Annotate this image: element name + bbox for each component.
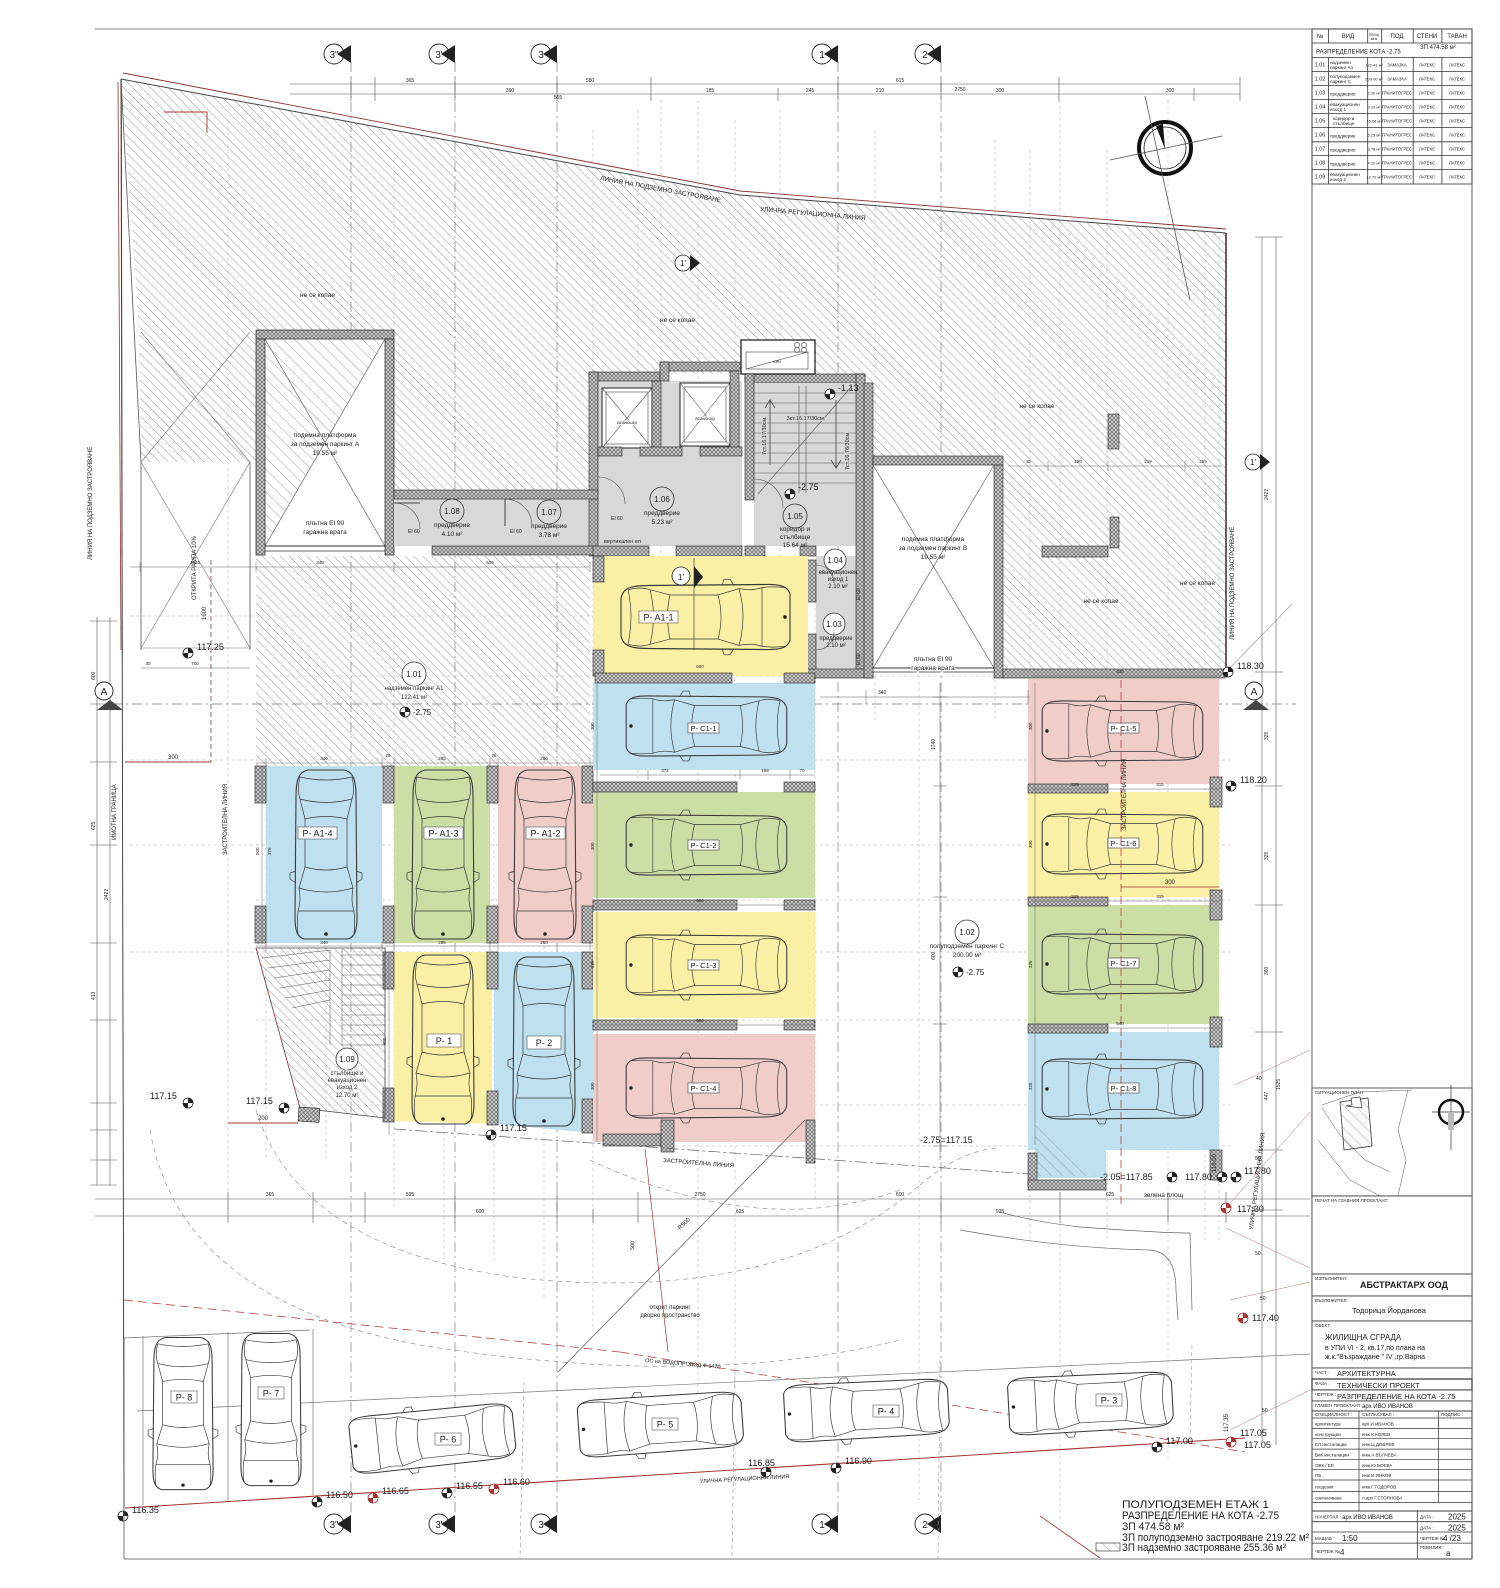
- svg-text:арх ИВО ИВАНОВ: арх ИВО ИВАНОВ: [1342, 1515, 1393, 1521]
- svg-text:615: 615: [896, 78, 905, 84]
- svg-text:ЧЕРТЕЖ №: ЧЕРТЕЖ №: [1315, 1549, 1340, 1554]
- svg-text:315: 315: [1156, 782, 1164, 787]
- svg-text:ОС на ВОДОПРОВОД Ф 1420: ОС на ВОДОПРОВОД Ф 1420: [645, 1358, 721, 1371]
- svg-text:3.78 м²: 3.78 м²: [538, 532, 560, 539]
- svg-text:28: 28: [385, 753, 391, 758]
- svg-text:1': 1': [678, 573, 684, 582]
- svg-text:R500: R500: [677, 1217, 692, 1232]
- svg-text:паркинг А1: паркинг А1: [1330, 65, 1354, 70]
- svg-text:ТЕХНИЧЕСКИ ПРОЕКТ: ТЕХНИЧЕСКИ ПРОЕКТ: [1337, 1381, 1420, 1390]
- svg-text:1.04: 1.04: [827, 556, 843, 565]
- svg-text:паркинг С: паркинг С: [1330, 79, 1352, 84]
- svg-text:325: 325: [1028, 1082, 1033, 1090]
- svg-text:340: 340: [320, 940, 328, 945]
- svg-text:340: 340: [878, 690, 887, 696]
- svg-text:инж.И.ЯНКОВ: инж.И.ЯНКОВ: [1362, 1473, 1391, 1478]
- svg-text:630: 630: [1116, 669, 1124, 674]
- svg-text:117.80: 117.80: [1244, 1166, 1271, 1176]
- svg-text:ЛАТЕКС: ЛАТЕКС: [1449, 105, 1465, 110]
- svg-text:2422: 2422: [104, 889, 110, 900]
- svg-text:не се копае: не се копае: [1020, 403, 1055, 410]
- svg-text:300: 300: [996, 88, 1005, 94]
- svg-text:117.40: 117.40: [1252, 1313, 1279, 1323]
- svg-text:ГРАНИТОГРЕС: ГРАНИТОГРЕС: [1382, 91, 1412, 96]
- svg-text:EI 60: EI 60: [856, 653, 862, 665]
- svg-text:117.15: 117.15: [500, 1123, 527, 1133]
- svg-text:116.65: 116.65: [382, 1486, 409, 1496]
- svg-text:3": 3": [329, 50, 339, 61]
- svg-text:арх И ИВАНОВ: арх И ИВАНОВ: [1362, 1422, 1394, 1427]
- svg-text:ГРАНИТОГРЕС: ГРАНИТОГРЕС: [1382, 161, 1412, 166]
- svg-text:1.01: 1.01: [1315, 63, 1326, 69]
- svg-text:УЛИЧНА РЕГУЛАЦИОННА ЛИНИЯ: УЛИЧНА РЕГУЛАЦИОННА ЛИНИЯ: [1249, 1133, 1267, 1231]
- svg-text:1.07: 1.07: [1315, 147, 1326, 153]
- svg-text:15.64 м²: 15.64 м²: [1366, 119, 1382, 124]
- svg-text:300: 300: [590, 722, 595, 730]
- svg-text:600: 600: [931, 951, 937, 960]
- svg-text:изход 1: изход 1: [1330, 107, 1346, 112]
- svg-text:НАЧЕРТАЛ :: НАЧЕРТАЛ :: [1315, 1515, 1341, 1520]
- svg-text:700: 700: [191, 661, 199, 666]
- svg-text:ФАЗА :: ФАЗА :: [1315, 1381, 1330, 1386]
- svg-text:340: 340: [316, 560, 324, 565]
- svg-text:A: A: [101, 687, 108, 698]
- svg-text:ДАТА :: ДАТА :: [1420, 1515, 1434, 1520]
- svg-text:2750: 2750: [954, 87, 965, 93]
- svg-text:ЗАСТРОИТЕЛНА ЛИНИЯ: ЗАСТРОИТЕЛНА ЛИНИЯ: [663, 1158, 734, 1170]
- svg-text:-2.75: -2.75: [798, 482, 819, 492]
- svg-text:447: 447: [1264, 1091, 1270, 1100]
- svg-text:1.05: 1.05: [787, 512, 803, 521]
- svg-text:4.10 м²: 4.10 м²: [441, 531, 463, 538]
- svg-text:117.80: 117.80: [1185, 1172, 1212, 1182]
- svg-text:ЛАТЕКС: ЛАТЕКС: [1449, 161, 1465, 166]
- svg-text:подемна платформа: подемна платформа: [902, 536, 965, 543]
- svg-text:стълбище и: стълбище и: [330, 1071, 363, 1077]
- svg-text:ЛАТЕКС: ЛАТЕКС: [1419, 147, 1435, 152]
- svg-text:1': 1': [680, 259, 686, 268]
- svg-text:300: 300: [590, 842, 595, 850]
- svg-text:вертикален ел: вертикален ел: [604, 539, 641, 545]
- svg-text:P- C1-4: P- C1-4: [691, 1084, 717, 1093]
- svg-text:ЛАТЕКС: ЛАТЕКС: [1449, 119, 1465, 124]
- svg-text:P- 1: P- 1: [436, 1036, 453, 1046]
- svg-text:12.70 м²: 12.70 м²: [336, 1093, 359, 1099]
- svg-text:25: 25: [491, 753, 497, 758]
- svg-text:ОВК / ЕЕ: ОВК / ЕЕ: [1315, 1463, 1334, 1468]
- svg-text:600: 600: [896, 1192, 905, 1198]
- svg-text:преддверие: преддверие: [1330, 92, 1356, 97]
- svg-text:ПОДПИС :: ПОДПИС :: [1441, 1412, 1463, 1417]
- svg-text:P- 2: P- 2: [536, 1038, 553, 1048]
- svg-text:ГЛАВЕН ПРОЕКТАНТ :: ГЛАВЕН ПРОЕКТАНТ :: [1315, 1403, 1363, 1408]
- svg-text:дворно пространство: дворно пространство: [640, 1313, 700, 1319]
- svg-text:P- C1-1: P- C1-1: [691, 724, 717, 733]
- svg-text:280: 280: [1074, 459, 1082, 464]
- svg-text:не се копае: не се копае: [300, 292, 335, 299]
- svg-text:625: 625: [1106, 1192, 1115, 1198]
- svg-text:ПБ: ПБ: [1315, 1473, 1321, 1478]
- svg-text:ЗП 474.58 м²: ЗП 474.58 м²: [1420, 45, 1456, 51]
- svg-text:ИМОТНА ГРАНИЦА: ИМОТНА ГРАНИЦА: [112, 784, 118, 840]
- svg-text:50: 50: [1262, 1408, 1268, 1414]
- svg-text:ЕЛ инсталации: ЕЛ инсталации: [1315, 1442, 1347, 1447]
- svg-text:285: 285: [438, 756, 446, 761]
- svg-text:315: 315: [1156, 894, 1164, 899]
- svg-text:1.01: 1.01: [406, 670, 422, 679]
- svg-text:50: 50: [1260, 1296, 1266, 1302]
- svg-text:1.03: 1.03: [1315, 91, 1326, 97]
- svg-text:не се копае: не се копае: [1180, 580, 1215, 587]
- svg-text:не се копае: не се копае: [660, 317, 695, 324]
- svg-text:1.02: 1.02: [959, 928, 975, 937]
- svg-text:ВЪЗЛОЖИТЕЛ:: ВЪЗЛОЖИТЕЛ:: [1315, 1298, 1348, 1303]
- svg-text:P- A1-4: P- A1-4: [302, 829, 332, 839]
- svg-text:АРХИТЕКТУРНА: АРХИТЕКТУРНА: [1337, 1369, 1396, 1378]
- svg-text:625: 625: [736, 1209, 745, 1215]
- svg-text:зелена площ: зелена площ: [1144, 1192, 1184, 1199]
- svg-text:12.70 м²: 12.70 м²: [1366, 175, 1382, 180]
- svg-text:325: 325: [1264, 731, 1270, 740]
- svg-text:P- C1-3: P- C1-3: [691, 961, 717, 970]
- svg-text:117.05: 117.05: [1244, 1440, 1271, 1450]
- svg-text:P- C1-8: P- C1-8: [1111, 1084, 1137, 1093]
- svg-text:19.55 м²: 19.55 м²: [921, 554, 947, 561]
- svg-text:ЛАТЕКС: ЛАТЕКС: [1419, 77, 1435, 82]
- svg-text:300: 300: [1028, 722, 1033, 730]
- svg-text:РАЗПРЕДЕЛЕНИЕ НА КОТА -2.75: РАЗПРЕДЕЛЕНИЕ НА КОТА -2.75: [1337, 1392, 1455, 1401]
- svg-text:600: 600: [696, 664, 704, 669]
- svg-text:P- A1-2: P- A1-2: [530, 829, 560, 839]
- svg-text:-2.75: -2.75: [413, 708, 432, 717]
- svg-text:3: 3: [538, 1520, 544, 1531]
- svg-text:ГРАНИТОГРЕС: ГРАНИТОГРЕС: [1382, 147, 1412, 152]
- svg-text:АБСТРАКТАРХ ООД: АБСТРАКТАРХ ООД: [1360, 1280, 1449, 1290]
- svg-text:500: 500: [255, 847, 260, 855]
- svg-text:116.50: 116.50: [326, 1490, 353, 1500]
- svg-text:за подземен паркинг А: за подземен паркинг А: [291, 441, 360, 448]
- svg-text:ЛАТЕКС: ЛАТЕКС: [1419, 133, 1435, 138]
- svg-text:3": 3": [329, 1520, 339, 1531]
- svg-text:219: 219: [1144, 459, 1152, 464]
- svg-text:ЛАТЕКС: ЛАТЕКС: [1419, 105, 1435, 110]
- svg-text:СЪГЛАСУВАЛ :: СЪГЛАСУВАЛ :: [1362, 1412, 1394, 1417]
- svg-text:505: 505: [486, 560, 494, 565]
- svg-text:надземен паркинг А1: надземен паркинг А1: [384, 686, 444, 692]
- svg-text:2.10 м²: 2.10 м²: [1368, 105, 1382, 110]
- svg-text:EI 60: EI 60: [856, 588, 862, 600]
- svg-text:3ст.16.17/30см.: 3ст.16.17/30см.: [787, 416, 826, 422]
- svg-text:ж.к."Възраждане " IV ,гр.Варна: ж.к."Възраждане " IV ,гр.Варна: [1325, 1354, 1425, 1361]
- svg-text:ОБЕКТ:: ОБЕКТ:: [1315, 1323, 1331, 1328]
- svg-text:-1.13: -1.13: [838, 383, 859, 393]
- svg-text:ЗП надземно застрояване 255.36: ЗП надземно застрояване 255.36 м²: [1122, 1542, 1286, 1554]
- svg-text:ЛАТЕКС: ЛАТЕКС: [1419, 175, 1435, 180]
- svg-text:225: 225: [1071, 894, 1079, 899]
- svg-text:ВИД: ВИД: [1342, 34, 1354, 40]
- svg-text:1: 1: [819, 1520, 825, 1531]
- svg-text:№: №: [1317, 33, 1323, 40]
- svg-text:285: 285: [438, 940, 446, 945]
- svg-text:ОТКРИТА РАМПА 10%: ОТКРИТА РАМПА 10%: [192, 535, 198, 600]
- svg-text:365: 365: [266, 1192, 275, 1198]
- svg-text:260: 260: [540, 756, 548, 761]
- svg-text:625: 625: [91, 821, 97, 830]
- svg-text:118.00: 118.00: [1212, 1153, 1218, 1172]
- svg-text:ПЕЧАТ НА ГЛАВНИЯ ПРОЕКТАНТ:: ПЕЧАТ НА ГЛАВНИЯ ПРОЕКТАНТ:: [1315, 1198, 1389, 1203]
- svg-text:инж.Г.ТОДОРОВ: инж.Г.ТОДОРОВ: [1362, 1485, 1396, 1490]
- svg-text:1.08: 1.08: [444, 507, 460, 516]
- svg-text:РЕВИЗИЯ :: РЕВИЗИЯ :: [1420, 1545, 1444, 1550]
- svg-text:открит паркинг: открит паркинг: [649, 1305, 691, 1311]
- svg-text:210: 210: [876, 88, 885, 94]
- svg-text:1.03: 1.03: [826, 620, 842, 629]
- svg-text:изход 1: изход 1: [828, 577, 849, 583]
- svg-text:ЛАТЕКС: ЛАТЕКС: [1419, 63, 1435, 68]
- svg-text:EI 60: EI 60: [611, 516, 623, 522]
- svg-text:геодезия: геодезия: [1315, 1485, 1334, 1490]
- svg-text:арх ИВО ИВАНОВ: арх ИВО ИВАНОВ: [1362, 1404, 1413, 1410]
- svg-text:ИЗПЪЛНИТЕЛ:: ИЗПЪЛНИТЕЛ:: [1315, 1276, 1347, 1281]
- svg-text:1.06: 1.06: [1315, 133, 1326, 139]
- svg-text:л.арх.Г.СТОЯНОВА: л.арх.Г.СТОЯНОВА: [1362, 1496, 1402, 1501]
- svg-text:РАЗПРЕДЕЛЕНИЕ КОТА -2.75: РАЗПРЕДЕЛЕНИЕ КОТА -2.75: [1316, 50, 1401, 56]
- svg-text:сен: сен: [773, 359, 781, 364]
- svg-text:2.10 м²: 2.10 м²: [828, 584, 847, 590]
- svg-text:1.09: 1.09: [1315, 175, 1326, 181]
- svg-text:117.05: 117.05: [1240, 1428, 1267, 1438]
- svg-text:ВиК инсталации: ВиК инсталации: [1315, 1452, 1349, 1457]
- svg-text:1525: 1525: [1276, 1079, 1282, 1090]
- svg-text:117.35: 117.35: [1224, 1413, 1230, 1432]
- svg-text:325: 325: [1264, 851, 1270, 860]
- svg-text:5.23 м²: 5.23 м²: [1368, 133, 1382, 138]
- svg-text:ЗАСТРОИТЕЛНА ЛИНИЯ: ЗАСТРОИТЕЛНА ЛИНИЯ: [1122, 759, 1128, 830]
- svg-text:ПОД: ПОД: [1391, 34, 1404, 40]
- svg-text:а: а: [1446, 1549, 1451, 1558]
- svg-text:2.10 м²: 2.10 м²: [1368, 91, 1382, 96]
- svg-text:300: 300: [1165, 880, 1176, 886]
- svg-text:ГРАНИТОГРЕС: ГРАНИТОГРЕС: [1382, 175, 1412, 180]
- svg-text:ЛАТЕКС: ЛАТЕКС: [1419, 161, 1435, 166]
- svg-text:365: 365: [406, 78, 415, 84]
- svg-text:117.25: 117.25: [197, 642, 224, 652]
- svg-text:375: 375: [267, 847, 272, 855]
- svg-text:300: 300: [1028, 840, 1033, 848]
- svg-text:УЛИЧНА РЕГУЛАЦИОННА ЛИНИЯ: УЛИЧНА РЕГУЛАЦИОННА ЛИНИЯ: [700, 1474, 790, 1485]
- svg-text:3.78 м²: 3.78 м²: [1368, 147, 1382, 152]
- svg-text:595: 595: [406, 1192, 415, 1198]
- svg-text:плътна EI 90: плътна EI 90: [914, 656, 953, 663]
- svg-text:ТАВАН: ТАВАН: [1447, 34, 1467, 40]
- svg-text:7ст.16.17/30см.: 7ст.16.17/30см.: [762, 416, 768, 455]
- svg-text:1600: 1600: [202, 606, 208, 620]
- svg-text:40: 40: [1256, 1076, 1262, 1082]
- svg-text:ЛАТЕКС: ЛАТЕКС: [1449, 147, 1465, 152]
- svg-text:185: 185: [706, 88, 715, 94]
- svg-text:EI 60: EI 60: [408, 529, 420, 535]
- svg-text:118.30: 118.30: [1237, 661, 1264, 671]
- svg-text:1535: 1535: [190, 560, 201, 565]
- svg-text:P- 5: P- 5: [657, 1420, 674, 1430]
- svg-text:117.00: 117.00: [1166, 1436, 1193, 1446]
- svg-text:ЛАТЕКС: ЛАТЕКС: [1419, 119, 1435, 124]
- svg-text:118.20: 118.20: [1240, 775, 1267, 785]
- svg-text:555: 555: [554, 95, 563, 101]
- svg-text:P- 7: P- 7: [263, 1389, 280, 1399]
- svg-text:245: 245: [806, 88, 815, 94]
- svg-text:ДАТА :: ДАТА :: [1420, 1526, 1434, 1531]
- svg-text:ЧЕРТЕЖ :: ЧЕРТЕЖ :: [1315, 1392, 1336, 1397]
- svg-text:4 /23: 4 /23: [1443, 1534, 1461, 1543]
- svg-text:1.06: 1.06: [654, 495, 670, 504]
- svg-text:P- 8: P- 8: [176, 1393, 193, 1403]
- svg-text:117.15: 117.15: [246, 1096, 273, 1106]
- svg-text:инж.Ю.БОЕВА: инж.Ю.БОЕВА: [1362, 1463, 1392, 1468]
- svg-text:1: 1: [819, 50, 825, 61]
- svg-text:полуподземен паркинг С: полуподземен паркинг С: [930, 943, 1005, 950]
- svg-text:117.15: 117.15: [150, 1091, 177, 1101]
- svg-text:ЖИЛИЩНА СГРАДА: ЖИЛИЩНА СГРАДА: [1325, 1333, 1402, 1342]
- svg-text:1.04: 1.04: [1315, 105, 1326, 111]
- svg-text:1.08: 1.08: [1315, 161, 1326, 167]
- svg-text:1740: 1740: [931, 739, 937, 750]
- svg-text:изход 2: изход 2: [337, 1085, 358, 1091]
- svg-text:200.00 м²: 200.00 м²: [1365, 77, 1383, 82]
- svg-text:1.09: 1.09: [339, 1055, 355, 1064]
- svg-text:ЛИНИЯ НА ПОДЗЕМНО ЗАСТРОЯВАНЕ: ЛИНИЯ НА ПОДЗЕМНО ЗАСТРОЯВАНЕ: [88, 447, 94, 560]
- svg-text:40: 40: [1025, 459, 1031, 464]
- svg-text:300: 300: [590, 1082, 595, 1090]
- svg-text:ЛАТЕКС: ЛАТЕКС: [1449, 63, 1465, 68]
- svg-text:асансьор: асансьор: [695, 416, 715, 421]
- svg-text:P- A1-3: P- A1-3: [428, 829, 458, 839]
- svg-text:ЛАТЕКС: ЛАТЕКС: [1449, 175, 1465, 180]
- svg-text:1.05: 1.05: [1315, 119, 1326, 125]
- svg-text:225: 225: [1071, 782, 1079, 787]
- svg-text:стълбище: стълбище: [780, 533, 811, 541]
- svg-text:P- 3: P- 3: [1101, 1396, 1118, 1406]
- svg-text:158: 158: [761, 768, 769, 773]
- svg-text:преддверие: преддверие: [1330, 162, 1356, 167]
- svg-text:МАЩАБ :: МАЩАБ :: [1315, 1536, 1334, 1541]
- svg-text:1.02: 1.02: [1315, 77, 1326, 83]
- svg-text:за подземен паркинг В: за подземен паркинг В: [899, 545, 968, 552]
- svg-text:600: 600: [476, 1209, 485, 1215]
- svg-text:Тодорица Йорданова: Тодорица Йорданова: [1352, 1306, 1427, 1315]
- svg-text:117.30: 117.30: [1237, 1204, 1264, 1214]
- svg-text:архитектура: архитектура: [1315, 1422, 1341, 1427]
- svg-text:413: 413: [91, 991, 97, 1000]
- svg-text:600: 600: [696, 1018, 704, 1023]
- svg-text:ЗАМАЗКА: ЗАМАЗКА: [1387, 77, 1407, 82]
- svg-text:15.64 м²: 15.64 м²: [783, 542, 809, 549]
- svg-text:372: 372: [661, 768, 669, 773]
- svg-text:ГРАНИТОГРЕС: ГРАНИТОГРЕС: [1382, 133, 1412, 138]
- svg-text:ГРАНИТОГРЕС: ГРАНИТОГРЕС: [1382, 105, 1412, 110]
- svg-text:360: 360: [1264, 966, 1270, 975]
- svg-text:340: 340: [320, 756, 328, 761]
- svg-text:P- C1-2: P- C1-2: [691, 841, 717, 850]
- svg-text:не се копае: не се копае: [1084, 598, 1119, 605]
- svg-text:СТЕНИ: СТЕНИ: [1417, 34, 1437, 40]
- svg-text:4.10 м²: 4.10 м²: [1368, 161, 1382, 166]
- svg-text:ЧАСТ :: ЧАСТ :: [1315, 1370, 1329, 1375]
- svg-text:инж.А.ВЪЛЧЕВА: инж.А.ВЪЛЧЕВА: [1362, 1452, 1397, 1457]
- svg-text:стълбище: стълбище: [1333, 121, 1355, 126]
- svg-text:ГРАНИТОГРЕС: ГРАНИТОГРЕС: [1382, 119, 1412, 124]
- svg-text:269: 269: [1199, 459, 1207, 464]
- svg-text:390: 390: [506, 88, 515, 94]
- svg-text:2: 2: [922, 1520, 928, 1531]
- svg-text:ЗАМАЗКА: ЗАМАЗКА: [1387, 63, 1407, 68]
- svg-text:116.90: 116.90: [845, 1456, 872, 1466]
- svg-text:19.55 м²: 19.55 м²: [313, 450, 339, 457]
- svg-text:гаражна врата: гаражна врата: [911, 665, 955, 672]
- svg-text:преддверие: преддверие: [1330, 134, 1356, 139]
- svg-text:EI 60: EI 60: [510, 529, 522, 535]
- svg-text:P- A1-1: P- A1-1: [643, 613, 673, 623]
- svg-text:в УПИ VI - 2, кв.17,по плана: в УПИ VI - 2, кв.17,по плана на: [1325, 1345, 1425, 1352]
- svg-text:116.35: 116.35: [132, 1505, 159, 1515]
- svg-text:2750: 2750: [694, 1192, 705, 1198]
- svg-text:50: 50: [1255, 1251, 1261, 1257]
- svg-text:P- C1-5: P- C1-5: [1111, 724, 1137, 733]
- svg-text:2422: 2422: [1264, 489, 1270, 500]
- svg-text:P- C1-6: P- C1-6: [1111, 839, 1137, 848]
- svg-text:подемна платформа: подемна платформа: [294, 432, 357, 439]
- svg-text:евакуационен: евакуационен: [819, 570, 858, 576]
- svg-text:300: 300: [1166, 88, 1175, 94]
- svg-text:2025: 2025: [1448, 1513, 1466, 1522]
- svg-text:116.60: 116.60: [503, 1477, 530, 1487]
- svg-text:600: 600: [91, 671, 97, 680]
- svg-text:3': 3': [435, 1520, 443, 1531]
- svg-text:изход 2: изход 2: [1330, 177, 1346, 182]
- svg-text:преддверие: преддверие: [434, 522, 470, 529]
- svg-text:500: 500: [382, 1037, 387, 1045]
- svg-text:кв.м: кв.м: [1371, 37, 1378, 41]
- svg-text:СПЕЦИАЛНОСТ :: СПЕЦИАЛНОСТ :: [1315, 1412, 1352, 1417]
- svg-text:плътна EI 90: плътна EI 90: [306, 520, 345, 527]
- svg-text:30: 30: [145, 661, 151, 666]
- svg-text:3: 3: [538, 50, 544, 61]
- svg-text:инж.К.КОЛЕВ: инж.К.КОЛЕВ: [1362, 1432, 1390, 1437]
- svg-text:преддверие: преддверие: [1330, 148, 1356, 153]
- svg-text:ЛИНИЯ НА ПОДЗЕМНО ЗАСТРОЯВАНЕ: ЛИНИЯ НА ПОДЗЕМНО ЗАСТРОЯВАНЕ: [1230, 527, 1236, 640]
- svg-text:1.07: 1.07: [541, 508, 557, 517]
- svg-text:СИТУАЦИОНЕН ПЛАН: СИТУАЦИОНЕН ПЛАН: [1315, 1090, 1363, 1095]
- svg-text:260: 260: [540, 940, 548, 945]
- svg-text:600: 600: [696, 898, 704, 903]
- svg-text:евакуационен: евакуационен: [328, 1078, 367, 1084]
- svg-text:преддверие: преддверие: [819, 636, 853, 642]
- svg-text:500: 500: [630, 1241, 636, 1250]
- svg-text:122.41 м²: 122.41 м²: [1365, 63, 1383, 68]
- svg-text:580: 580: [586, 78, 595, 84]
- svg-text:P- 4: P- 4: [878, 1407, 895, 1417]
- svg-text:70: 70: [799, 768, 805, 773]
- svg-text:5.23 м²: 5.23 м²: [651, 519, 673, 526]
- svg-text:2: 2: [922, 50, 928, 61]
- svg-text:преддверие: преддверие: [531, 523, 567, 530]
- svg-text:116.85: 116.85: [748, 1458, 775, 1468]
- svg-text:7ст.16.76/30см.: 7ст.16.76/30см.: [845, 431, 851, 470]
- svg-text:3': 3': [435, 50, 443, 61]
- svg-text:325: 325: [590, 960, 595, 968]
- svg-text:-2.75=117.15: -2.75=117.15: [920, 1135, 973, 1145]
- svg-text:P- 6: P- 6: [440, 1435, 457, 1445]
